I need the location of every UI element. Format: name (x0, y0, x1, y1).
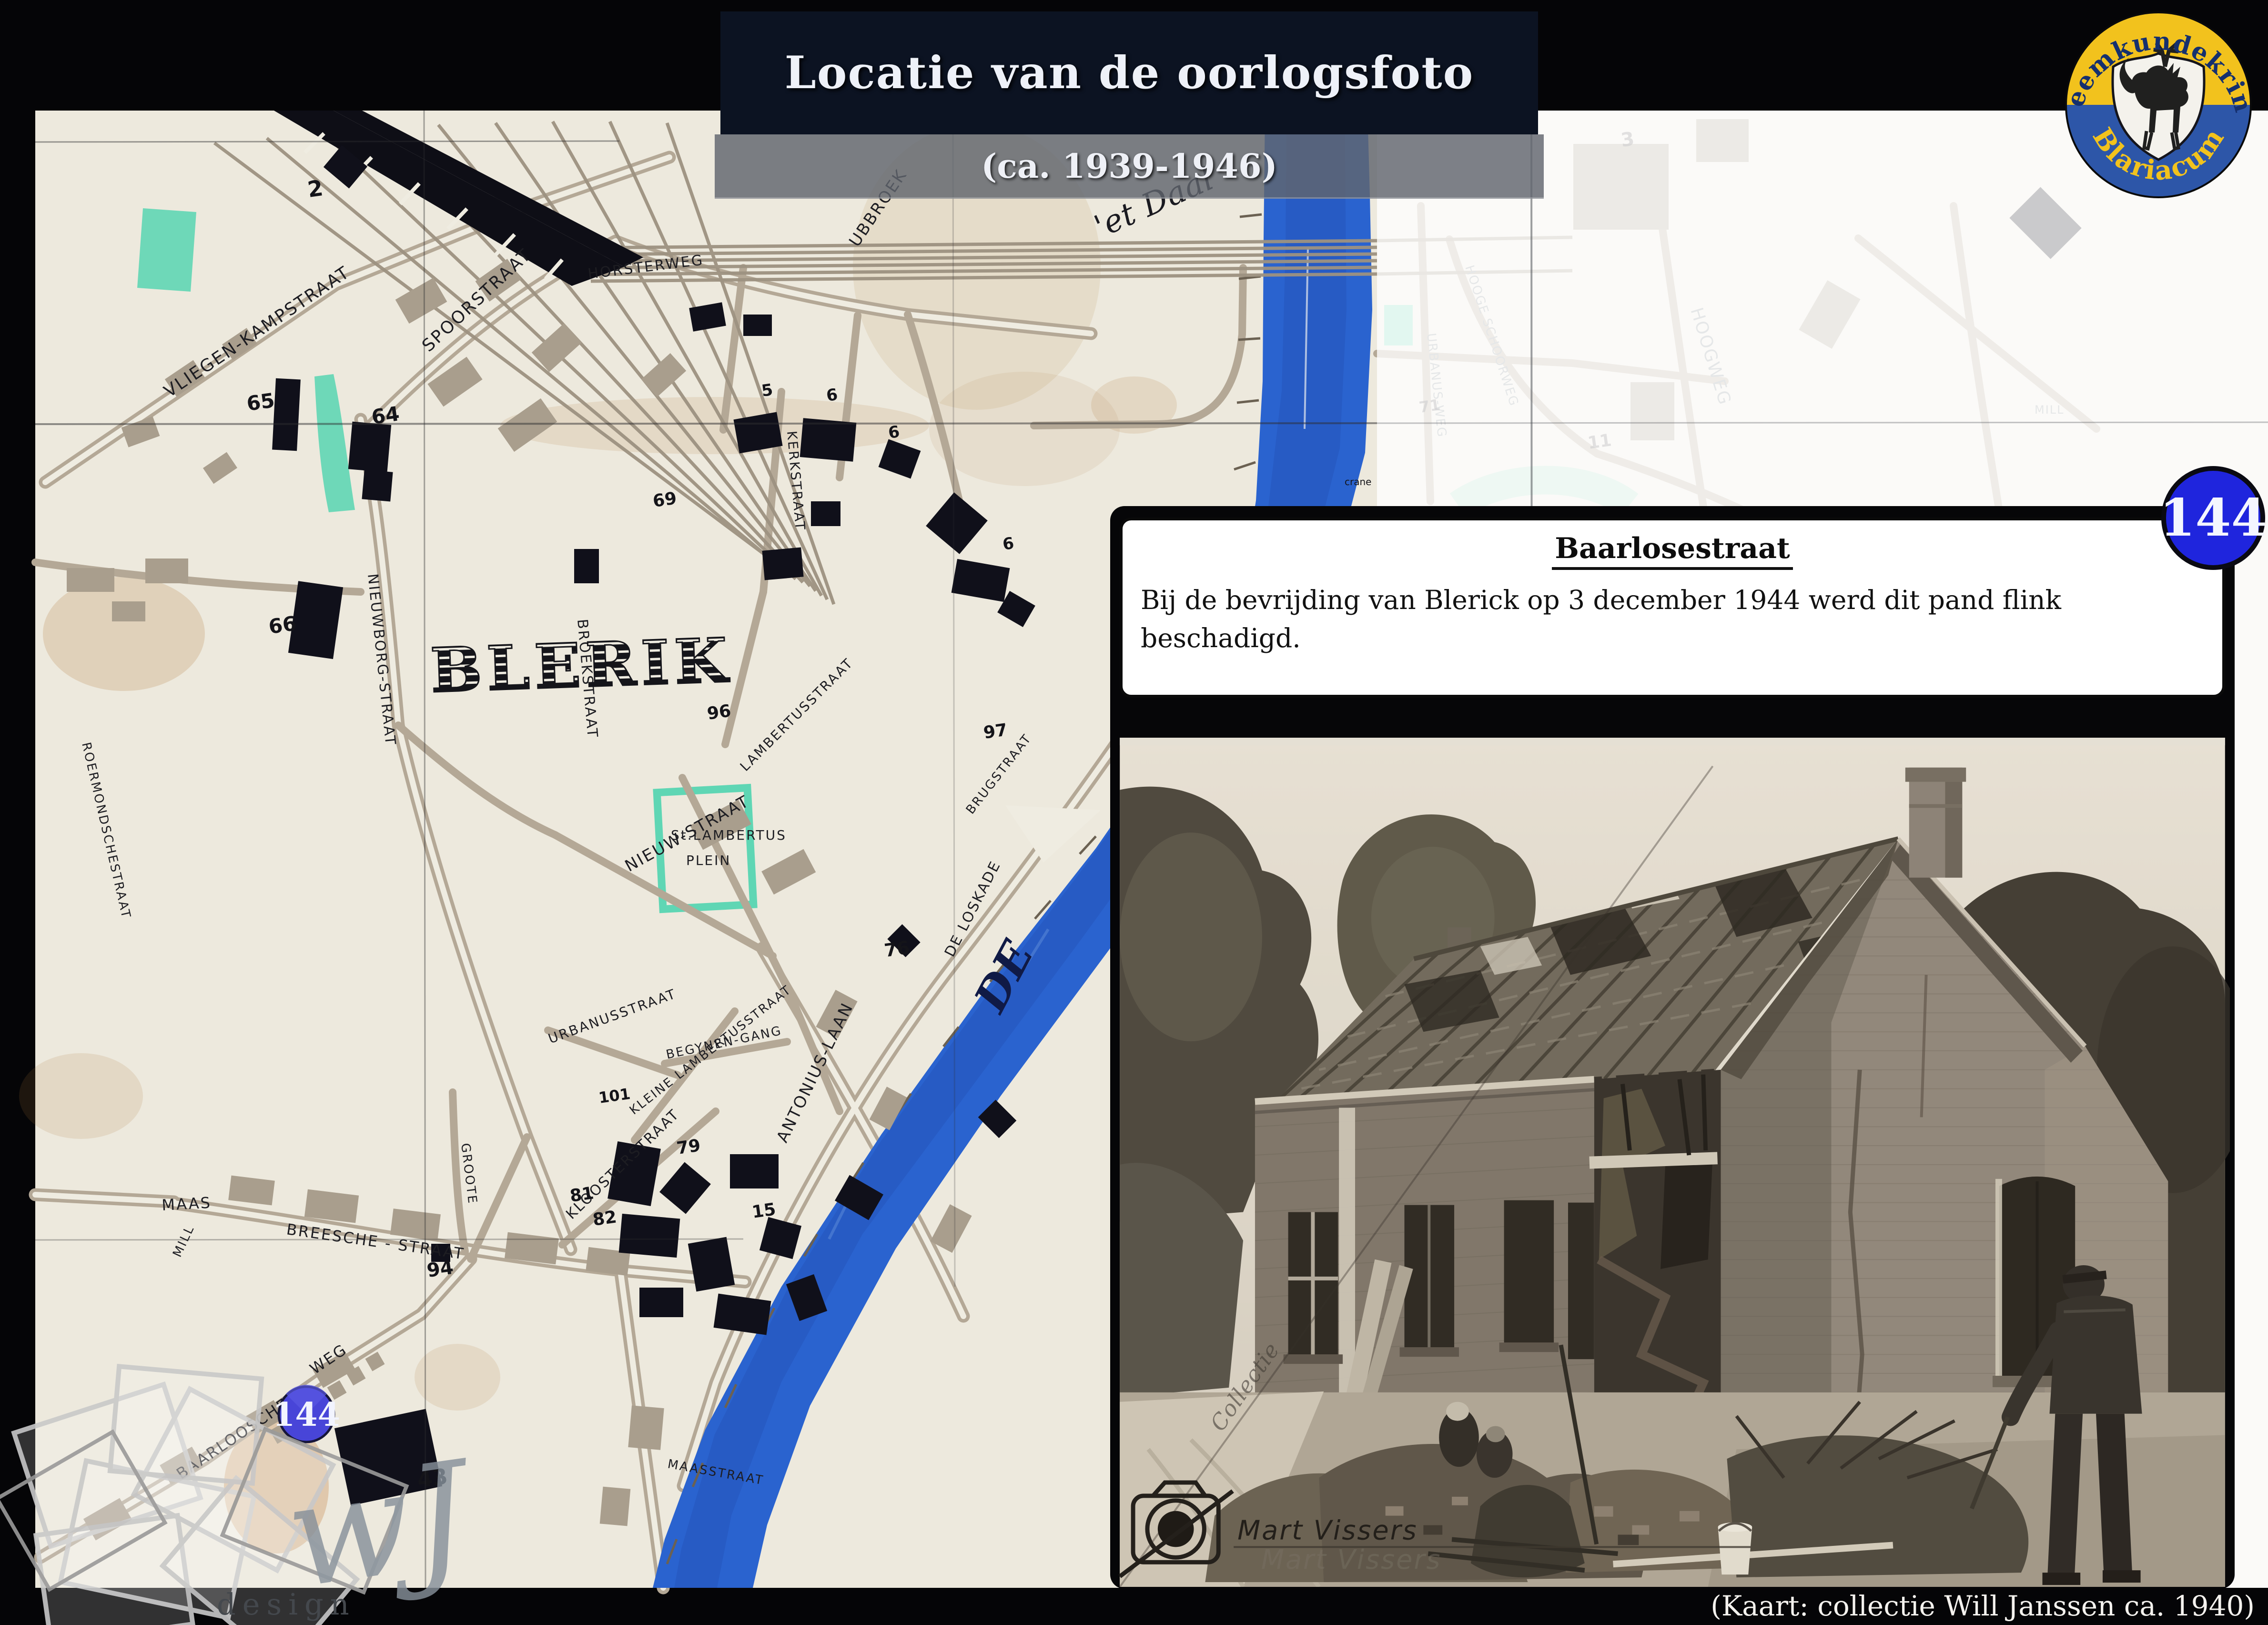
slide: VLIEGEN-KAMPSTRAAT SPOORSTRAAT NIEUWBORG… (0, 0, 2268, 1625)
map-street-label: MAAS (161, 1194, 212, 1214)
photo-panel: Baarlosestraat Bij de bevrijding van Ble… (1110, 506, 2235, 1589)
map-street-label: St.LAMBERTUS (671, 827, 787, 843)
subtitle-band: (ca. 1939-1946) (715, 134, 1544, 199)
map-place-label: BLERIK (429, 625, 733, 707)
map-number-label: 96 (706, 701, 732, 724)
map-number-label: 65 (245, 388, 276, 416)
map-number-label: 97 (982, 720, 1009, 743)
map-number-label: 66 (267, 611, 298, 639)
map-number-label: 79 (676, 1136, 702, 1158)
map-number-label: 69 (652, 488, 678, 511)
map-street-label: crane (1345, 476, 1371, 487)
svg-text:144: 144 (273, 1396, 340, 1434)
info-box-title: Baarlosestraat (1141, 532, 2204, 565)
map-number-label: 76 (883, 937, 911, 961)
map-number-label: 82 (592, 1207, 618, 1230)
design-label: design (217, 1587, 356, 1622)
slide-title: Locatie van de oorlogsfoto (785, 47, 1474, 99)
slide-subtitle: (ca. 1939-1946) (981, 146, 1277, 186)
map-credit-caption: (Kaart: collectie Will Janssen ca. 1940) (1302, 1590, 2255, 1622)
war-photo: Collectie Mart Vissers Mart Vissers (1115, 738, 2230, 1587)
map-number-label: 15 (751, 1199, 777, 1222)
title-banner: Locatie van de oorlogsfoto (720, 11, 1538, 134)
map-number-label: 94 (425, 1257, 455, 1282)
photo-number-badge: 144 (2161, 466, 2265, 570)
info-box-body: Bij de bevrijding van Blerick op 3 decem… (1141, 581, 2204, 658)
map-number-label: 81 (569, 1183, 595, 1206)
heemkundekring-logo: Heemkundekring Blariacum (2063, 10, 2254, 200)
info-box: Baarlosestraat Bij de bevrijding van Ble… (1120, 518, 2225, 698)
map-street-label: PLEIN (686, 853, 731, 868)
